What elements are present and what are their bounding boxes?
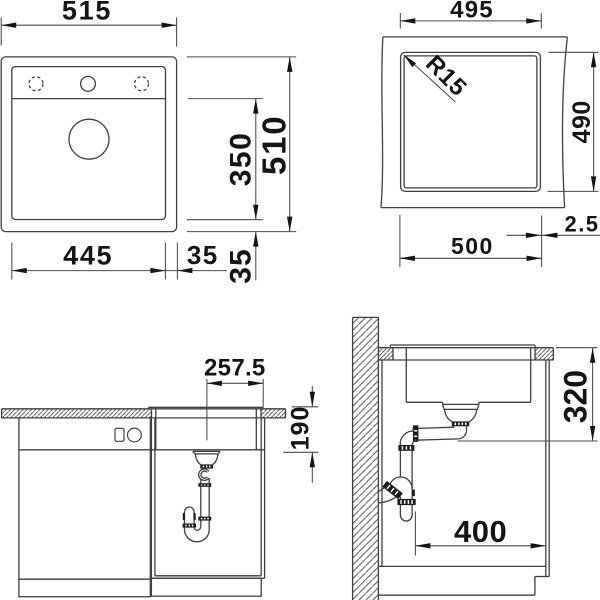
svg-text:320: 320 [557, 370, 593, 423]
svg-text:257.5: 257.5 [204, 355, 266, 382]
svg-text:35: 35 [187, 240, 219, 270]
svg-text:350: 350 [225, 132, 258, 187]
svg-text:445: 445 [63, 241, 113, 271]
svg-text:510: 510 [256, 115, 293, 175]
svg-text:490: 490 [568, 100, 596, 143]
svg-text:400: 400 [454, 514, 507, 549]
svg-text:515: 515 [62, 0, 112, 26]
svg-text:35: 35 [225, 248, 258, 283]
svg-text:2.5: 2.5 [564, 212, 599, 237]
svg-text:190: 190 [286, 406, 314, 451]
svg-text:500: 500 [451, 233, 494, 259]
svg-text:495: 495 [450, 0, 494, 23]
